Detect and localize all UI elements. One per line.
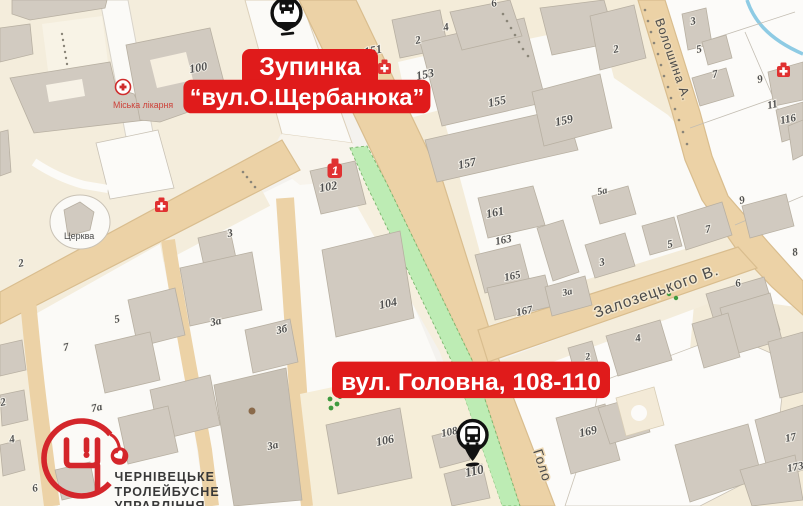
svg-text:3а: 3а [560,286,573,299]
svg-text:Церква: Церква [64,231,94,241]
svg-text:1: 1 [332,166,338,178]
svg-text:УПРАВЛІННЯ: УПРАВЛІННЯ [115,499,206,506]
svg-text:ЧЕРНІВЕЦЬКЕ: ЧЕРНІВЕЦЬКЕ [115,470,215,484]
svg-text:вул. Головна, 108-110: вул. Головна, 108-110 [341,369,601,396]
svg-text:“вул.О.Щербанюка”: “вул.О.Щербанюка” [190,84,424,110]
svg-text:Міська лікарня: Міська лікарня [113,100,173,110]
svg-text:Зупинка: Зупинка [259,53,362,81]
svg-text:ТРОЛЕЙБУСНЕ: ТРОЛЕЙБУСНЕ [115,484,220,499]
